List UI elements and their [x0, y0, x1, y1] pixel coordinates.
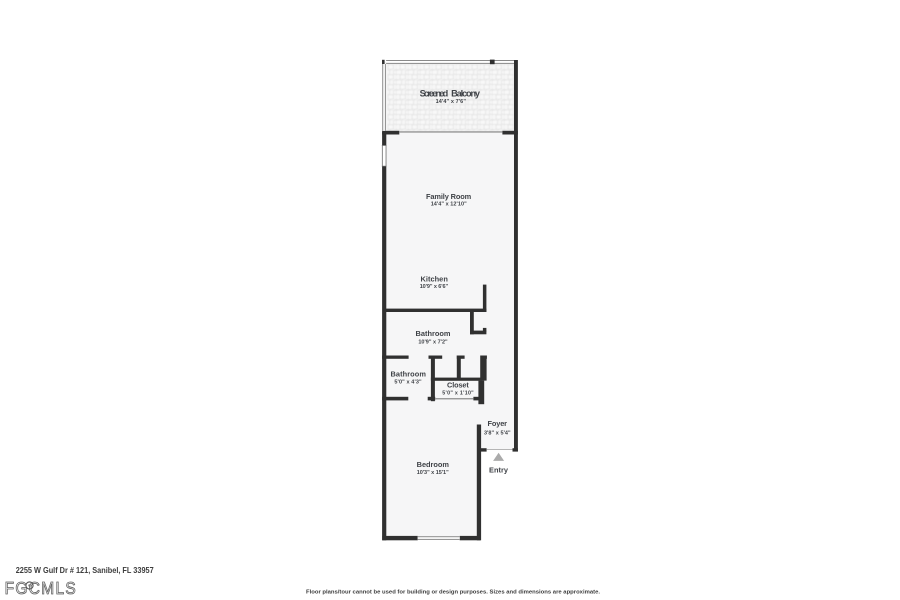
- svg-text:Foyer: Foyer: [488, 419, 508, 428]
- svg-text:2255 W Gulf Dr # 121, Sanibel,: 2255 W Gulf Dr # 121, Sanibel, FL 33957: [16, 566, 154, 575]
- svg-text:10'3" x 15'1": 10'3" x 15'1": [417, 470, 449, 476]
- svg-text:Bathroom: Bathroom: [416, 329, 451, 338]
- svg-text:Balcony: Balcony: [451, 88, 481, 98]
- svg-text:3'8" x 5'4": 3'8" x 5'4": [484, 430, 511, 436]
- svg-text:Bedroom: Bedroom: [417, 460, 450, 469]
- svg-text:Floor plans/tour cannot be use: Floor plans/tour cannot be used for buil…: [306, 589, 601, 595]
- svg-text:10'9" x 6'6": 10'9" x 6'6": [420, 284, 449, 290]
- svg-text:5'0" x 1'10": 5'0" x 1'10": [442, 391, 474, 397]
- svg-text:Closet: Closet: [447, 380, 469, 389]
- svg-text:10'9" x 7'2": 10'9" x 7'2": [418, 339, 448, 345]
- svg-text:14'4" x 12'10": 14'4" x 12'10": [431, 202, 467, 208]
- svg-text:Screened: Screened: [420, 88, 449, 98]
- svg-text:FGCMLS: FGCMLS: [5, 578, 78, 598]
- svg-text:Entry: Entry: [489, 465, 509, 474]
- svg-text:5'0" x 4'3": 5'0" x 4'3": [394, 380, 422, 386]
- svg-text:14'4" x 7'6": 14'4" x 7'6": [436, 99, 467, 105]
- svg-text:Kitchen: Kitchen: [421, 274, 449, 283]
- svg-text:Bathroom: Bathroom: [390, 370, 426, 379]
- svg-text:Family Room: Family Room: [426, 192, 472, 201]
